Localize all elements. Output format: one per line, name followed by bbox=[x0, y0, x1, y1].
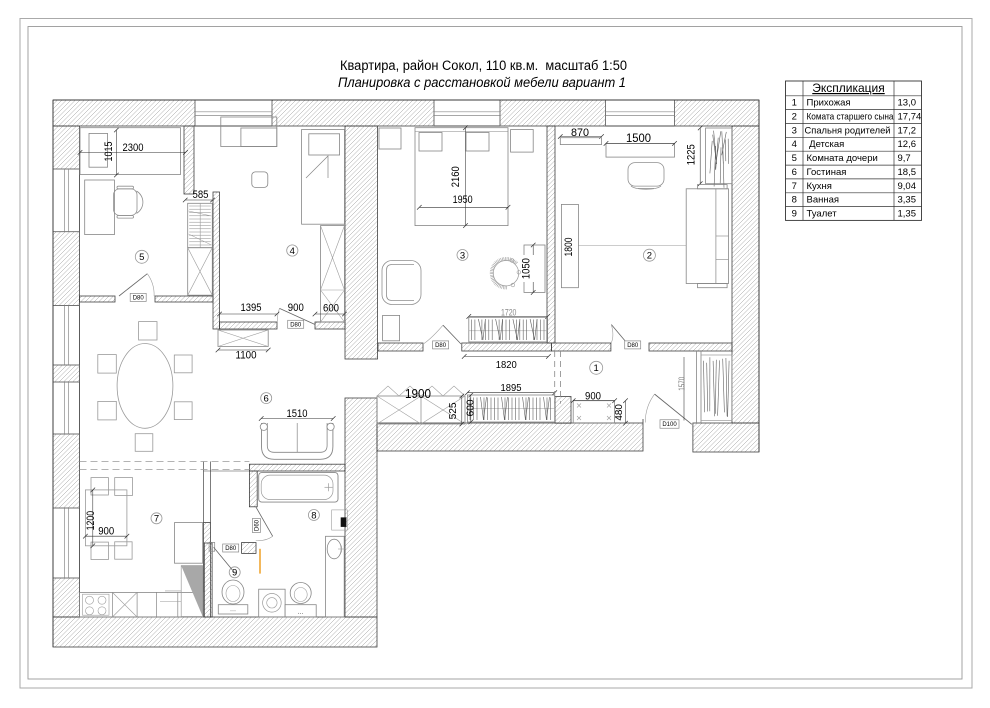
svg-text:D80: D80 bbox=[627, 343, 639, 349]
svg-text:1: 1 bbox=[792, 98, 797, 109]
svg-text:9,04: 9,04 bbox=[898, 181, 917, 192]
svg-text:18,5: 18,5 bbox=[898, 167, 917, 178]
svg-text:Экспликация: Экспликация bbox=[812, 81, 884, 95]
svg-text:2: 2 bbox=[792, 112, 797, 123]
svg-text:900: 900 bbox=[98, 526, 114, 538]
svg-text:Гостиная: Гостиная bbox=[807, 167, 847, 178]
svg-text:Квартира, район Сокол, 110 кв.: Квартира, район Сокол, 110 кв.м. масштаб… bbox=[340, 58, 627, 73]
svg-text:2300: 2300 bbox=[123, 142, 144, 154]
svg-text:7: 7 bbox=[154, 514, 159, 525]
svg-text:D80: D80 bbox=[225, 546, 237, 552]
svg-text:Комата старшего сына: Комата старшего сына bbox=[807, 112, 895, 123]
svg-text:···: ··· bbox=[298, 611, 304, 617]
svg-text:870: 870 bbox=[571, 127, 589, 139]
svg-text:1510: 1510 bbox=[287, 408, 308, 420]
svg-text:6: 6 bbox=[792, 167, 797, 178]
svg-text:1800: 1800 bbox=[563, 238, 575, 257]
svg-text:480: 480 bbox=[613, 404, 625, 421]
svg-text:4: 4 bbox=[792, 139, 797, 150]
svg-text:3: 3 bbox=[460, 250, 465, 261]
svg-text:Ванная: Ванная bbox=[807, 195, 840, 206]
svg-text:3: 3 bbox=[792, 125, 797, 136]
svg-text:5: 5 bbox=[792, 153, 797, 164]
svg-text:600: 600 bbox=[323, 302, 339, 314]
svg-text:1225: 1225 bbox=[686, 144, 698, 165]
svg-text:1100: 1100 bbox=[236, 350, 257, 362]
svg-text:1720: 1720 bbox=[501, 307, 517, 318]
svg-text:Планировка с расстановкой мебе: Планировка с расстановкой мебели вариант… bbox=[338, 75, 626, 90]
svg-text:5: 5 bbox=[139, 252, 144, 263]
svg-text:1200: 1200 bbox=[85, 511, 97, 531]
svg-text:13,0: 13,0 bbox=[898, 98, 917, 109]
svg-text:1900: 1900 bbox=[405, 387, 431, 401]
svg-text:1570: 1570 bbox=[677, 376, 686, 390]
svg-text:1895: 1895 bbox=[501, 382, 522, 394]
svg-text:12,6: 12,6 bbox=[898, 139, 917, 150]
svg-text:1015: 1015 bbox=[103, 142, 115, 162]
svg-text:1820: 1820 bbox=[496, 359, 517, 371]
svg-text:8: 8 bbox=[792, 195, 797, 206]
svg-text:D80: D80 bbox=[133, 296, 145, 302]
svg-text:D100: D100 bbox=[662, 422, 677, 428]
svg-text:17,2: 17,2 bbox=[898, 125, 917, 136]
svg-text:1050: 1050 bbox=[521, 258, 533, 279]
svg-text:525: 525 bbox=[447, 402, 459, 419]
svg-text:585: 585 bbox=[193, 189, 209, 201]
svg-text:Прихожая: Прихожая bbox=[807, 98, 851, 109]
svg-text:Туалет: Туалет bbox=[807, 208, 838, 219]
svg-text:D80: D80 bbox=[290, 322, 302, 328]
svg-text:1,35: 1,35 bbox=[898, 208, 917, 219]
svg-text:1500: 1500 bbox=[626, 133, 651, 145]
svg-text:8: 8 bbox=[311, 510, 316, 521]
svg-text:900: 900 bbox=[585, 391, 601, 403]
svg-text:Кухня: Кухня bbox=[807, 181, 832, 192]
svg-text:9,7: 9,7 bbox=[898, 153, 911, 164]
svg-text:Комната дочери: Комната дочери bbox=[807, 153, 878, 164]
svg-text:6: 6 bbox=[264, 394, 269, 405]
svg-text:1395: 1395 bbox=[241, 302, 262, 314]
svg-text:900: 900 bbox=[288, 302, 304, 314]
svg-text:Детская: Детская bbox=[807, 139, 845, 150]
svg-text:17,74: 17,74 bbox=[898, 112, 922, 123]
svg-text:2: 2 bbox=[647, 251, 652, 262]
svg-text:Спальня родителей: Спальня родителей bbox=[805, 125, 891, 136]
svg-text:···: ··· bbox=[230, 609, 236, 615]
svg-text:2160: 2160 bbox=[450, 166, 462, 187]
svg-text:1950: 1950 bbox=[453, 194, 473, 206]
svg-text:D80: D80 bbox=[435, 343, 447, 349]
svg-text:7: 7 bbox=[792, 181, 797, 192]
svg-text:D60: D60 bbox=[255, 519, 261, 531]
svg-text:1: 1 bbox=[594, 363, 599, 374]
svg-text:9: 9 bbox=[792, 208, 797, 219]
svg-text:600: 600 bbox=[464, 399, 476, 416]
svg-text:4: 4 bbox=[290, 246, 295, 257]
svg-text:3,35: 3,35 bbox=[898, 195, 917, 206]
